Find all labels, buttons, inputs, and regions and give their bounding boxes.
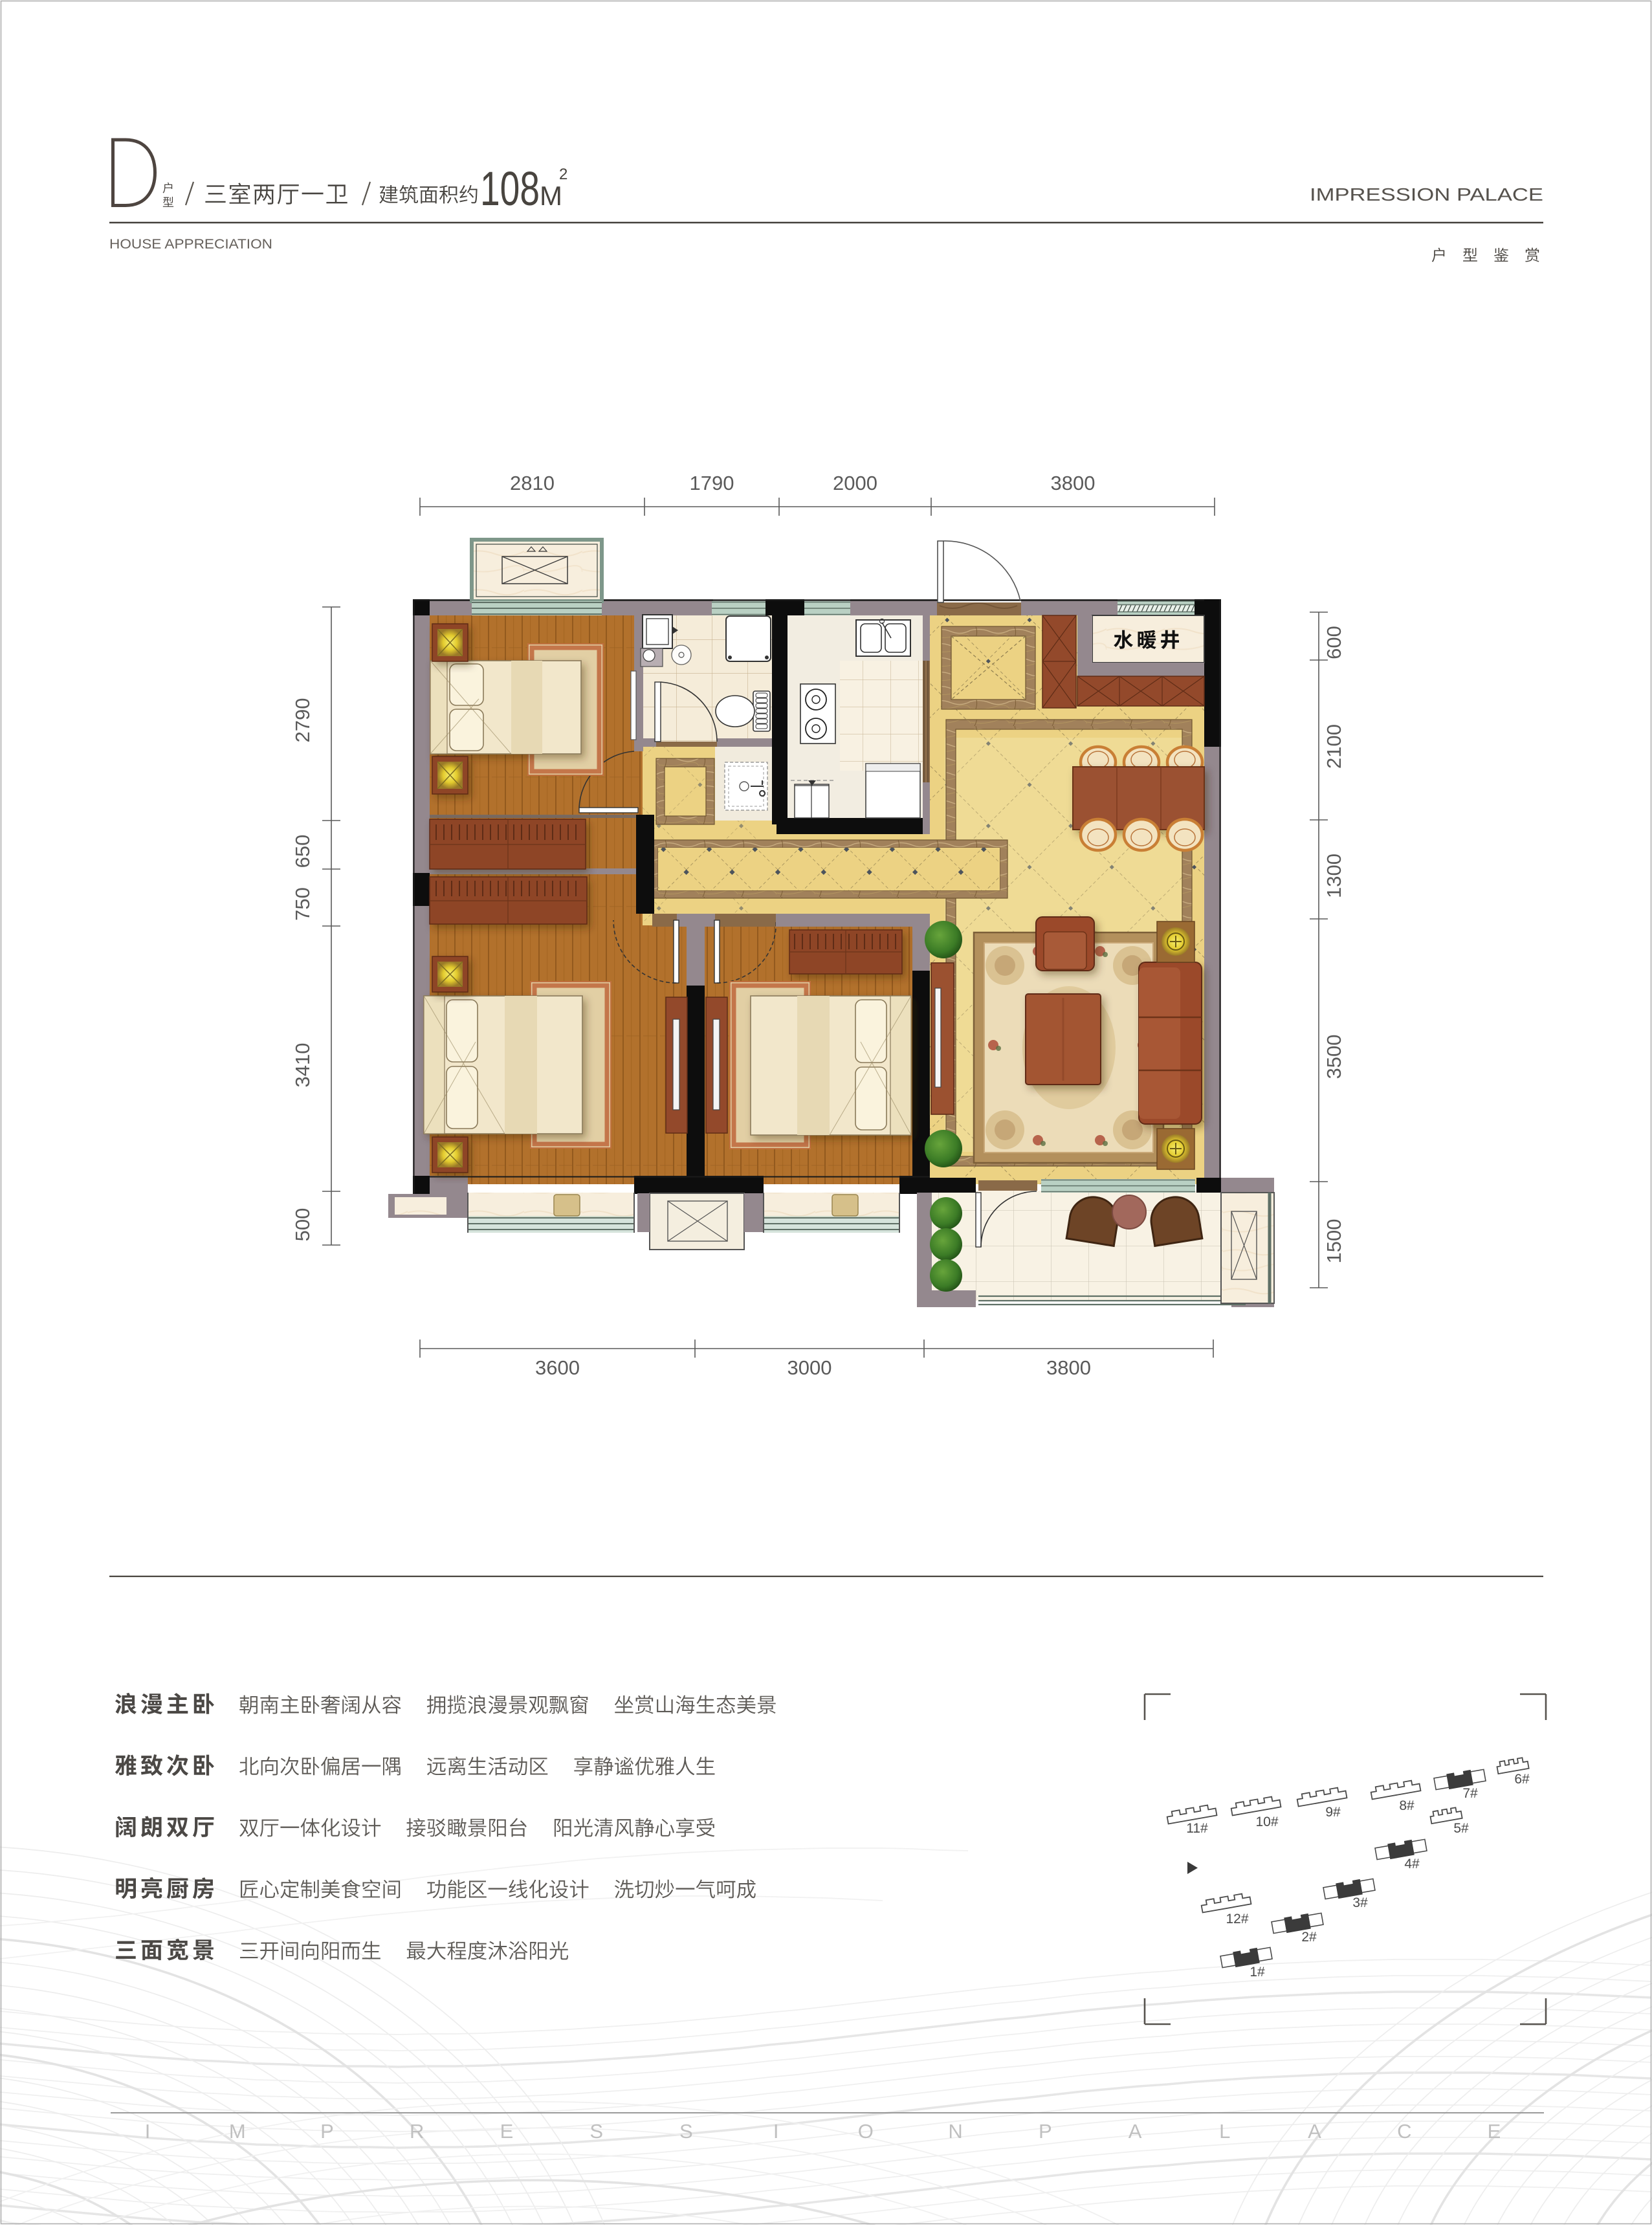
- svg-text:6#: 6#: [1514, 1772, 1530, 1787]
- svg-text:M: M: [229, 2120, 246, 2143]
- svg-text:600: 600: [1323, 626, 1345, 659]
- svg-text:I: I: [773, 2120, 779, 2143]
- svg-text:3500: 3500: [1323, 1035, 1345, 1079]
- svg-text:3000: 3000: [787, 1356, 832, 1379]
- svg-text:2810: 2810: [510, 472, 555, 494]
- svg-text:650: 650: [291, 835, 314, 868]
- svg-text:5#: 5#: [1453, 1821, 1469, 1836]
- svg-text:M: M: [540, 181, 562, 211]
- svg-text:12#: 12#: [1226, 1912, 1248, 1926]
- svg-text:11#: 11#: [1186, 1821, 1208, 1836]
- svg-text:N: N: [948, 2120, 962, 2143]
- svg-text:2: 2: [559, 166, 567, 183]
- svg-text:O: O: [858, 2120, 874, 2143]
- svg-text:1500: 1500: [1323, 1219, 1345, 1264]
- svg-text:750: 750: [291, 887, 314, 921]
- svg-text:S: S: [679, 2120, 693, 2143]
- svg-text:9#: 9#: [1325, 1805, 1341, 1820]
- svg-text:1300: 1300: [1323, 854, 1345, 898]
- svg-text:3410: 3410: [291, 1043, 314, 1088]
- svg-text:2#: 2#: [1301, 1930, 1317, 1945]
- svg-text:IMPRESSION PALACE: IMPRESSION PALACE: [1310, 184, 1543, 204]
- svg-text:108: 108: [480, 162, 540, 215]
- svg-text:E: E: [500, 2120, 514, 2143]
- svg-text:3800: 3800: [1046, 1356, 1091, 1379]
- svg-text:S: S: [589, 2120, 603, 2143]
- svg-text:10#: 10#: [1255, 1814, 1278, 1829]
- svg-text:A: A: [1308, 2120, 1321, 2143]
- svg-text:P: P: [320, 2120, 334, 2143]
- svg-text:C: C: [1397, 2120, 1411, 2143]
- svg-text:1#: 1#: [1250, 1965, 1265, 1980]
- svg-text:3#: 3#: [1352, 1895, 1368, 1910]
- svg-text:L: L: [1219, 2120, 1230, 2143]
- svg-text:E: E: [1488, 2120, 1501, 2143]
- svg-text:1790: 1790: [690, 472, 734, 494]
- svg-text:R: R: [410, 2120, 424, 2143]
- svg-text:4#: 4#: [1404, 1857, 1420, 1871]
- svg-text:A: A: [1129, 2120, 1142, 2143]
- svg-text:500: 500: [291, 1208, 314, 1242]
- svg-text:3600: 3600: [535, 1356, 580, 1379]
- svg-text:2790: 2790: [291, 698, 314, 743]
- svg-text:I: I: [145, 2120, 151, 2143]
- svg-text:8#: 8#: [1399, 1798, 1415, 1813]
- svg-text:2100: 2100: [1323, 724, 1345, 769]
- svg-text:2000: 2000: [833, 472, 877, 494]
- svg-text:3800: 3800: [1051, 472, 1096, 494]
- svg-text:P: P: [1039, 2120, 1052, 2143]
- svg-text:HOUSE APPRECIATION: HOUSE APPRECIATION: [109, 237, 272, 252]
- svg-text:7#: 7#: [1462, 1786, 1478, 1801]
